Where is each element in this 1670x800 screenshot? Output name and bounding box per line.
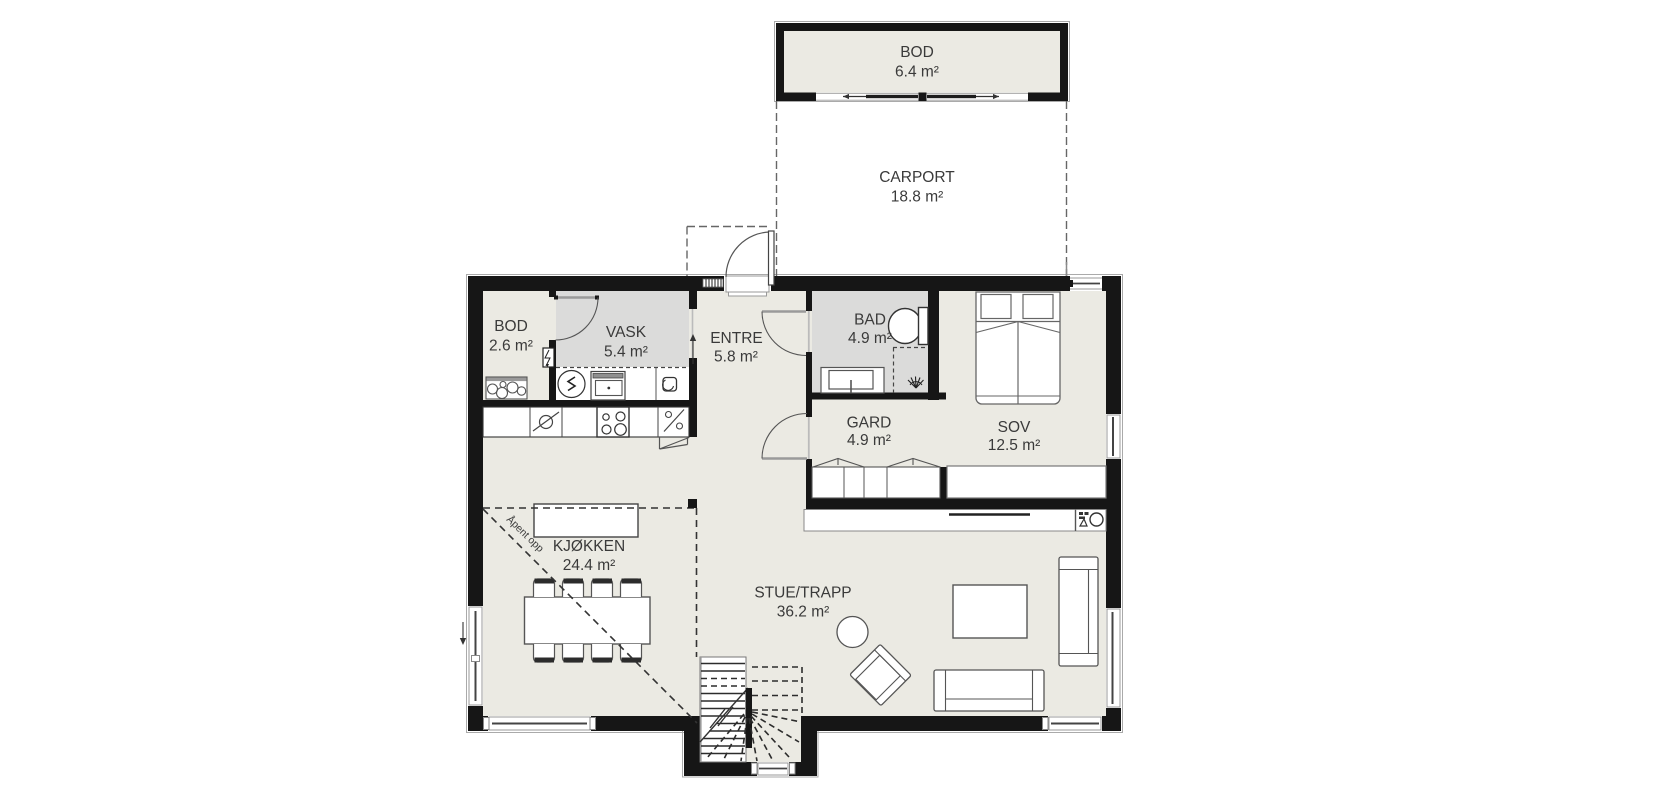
svg-text:BOD: BOD (900, 44, 934, 61)
svg-text:STUE/TRAPP: STUE/TRAPP (754, 585, 851, 602)
svg-text:GARD: GARD (847, 415, 892, 432)
svg-text:5.8 m²: 5.8 m² (714, 349, 758, 366)
svg-text:CARPORT: CARPORT (879, 169, 955, 186)
svg-text:BAD: BAD (854, 312, 886, 329)
svg-text:SOV: SOV (998, 419, 1031, 436)
svg-text:BOD: BOD (494, 318, 528, 335)
svg-text:2.6 m²: 2.6 m² (489, 338, 533, 355)
svg-text:24.4 m²: 24.4 m² (563, 557, 616, 574)
svg-text:4.9 m²: 4.9 m² (847, 432, 891, 449)
svg-text:5.4 m²: 5.4 m² (604, 344, 648, 361)
svg-text:12.5 m²: 12.5 m² (988, 437, 1041, 454)
svg-text:6.4 m²: 6.4 m² (895, 64, 939, 81)
svg-text:ENTRE: ENTRE (710, 330, 763, 347)
svg-text:4.9 m²: 4.9 m² (848, 330, 892, 347)
svg-text:VASK: VASK (606, 324, 647, 341)
svg-text:18.8 m²: 18.8 m² (891, 189, 944, 206)
svg-text:KJØKKEN: KJØKKEN (553, 538, 625, 555)
svg-text:36.2 m²: 36.2 m² (777, 604, 830, 621)
